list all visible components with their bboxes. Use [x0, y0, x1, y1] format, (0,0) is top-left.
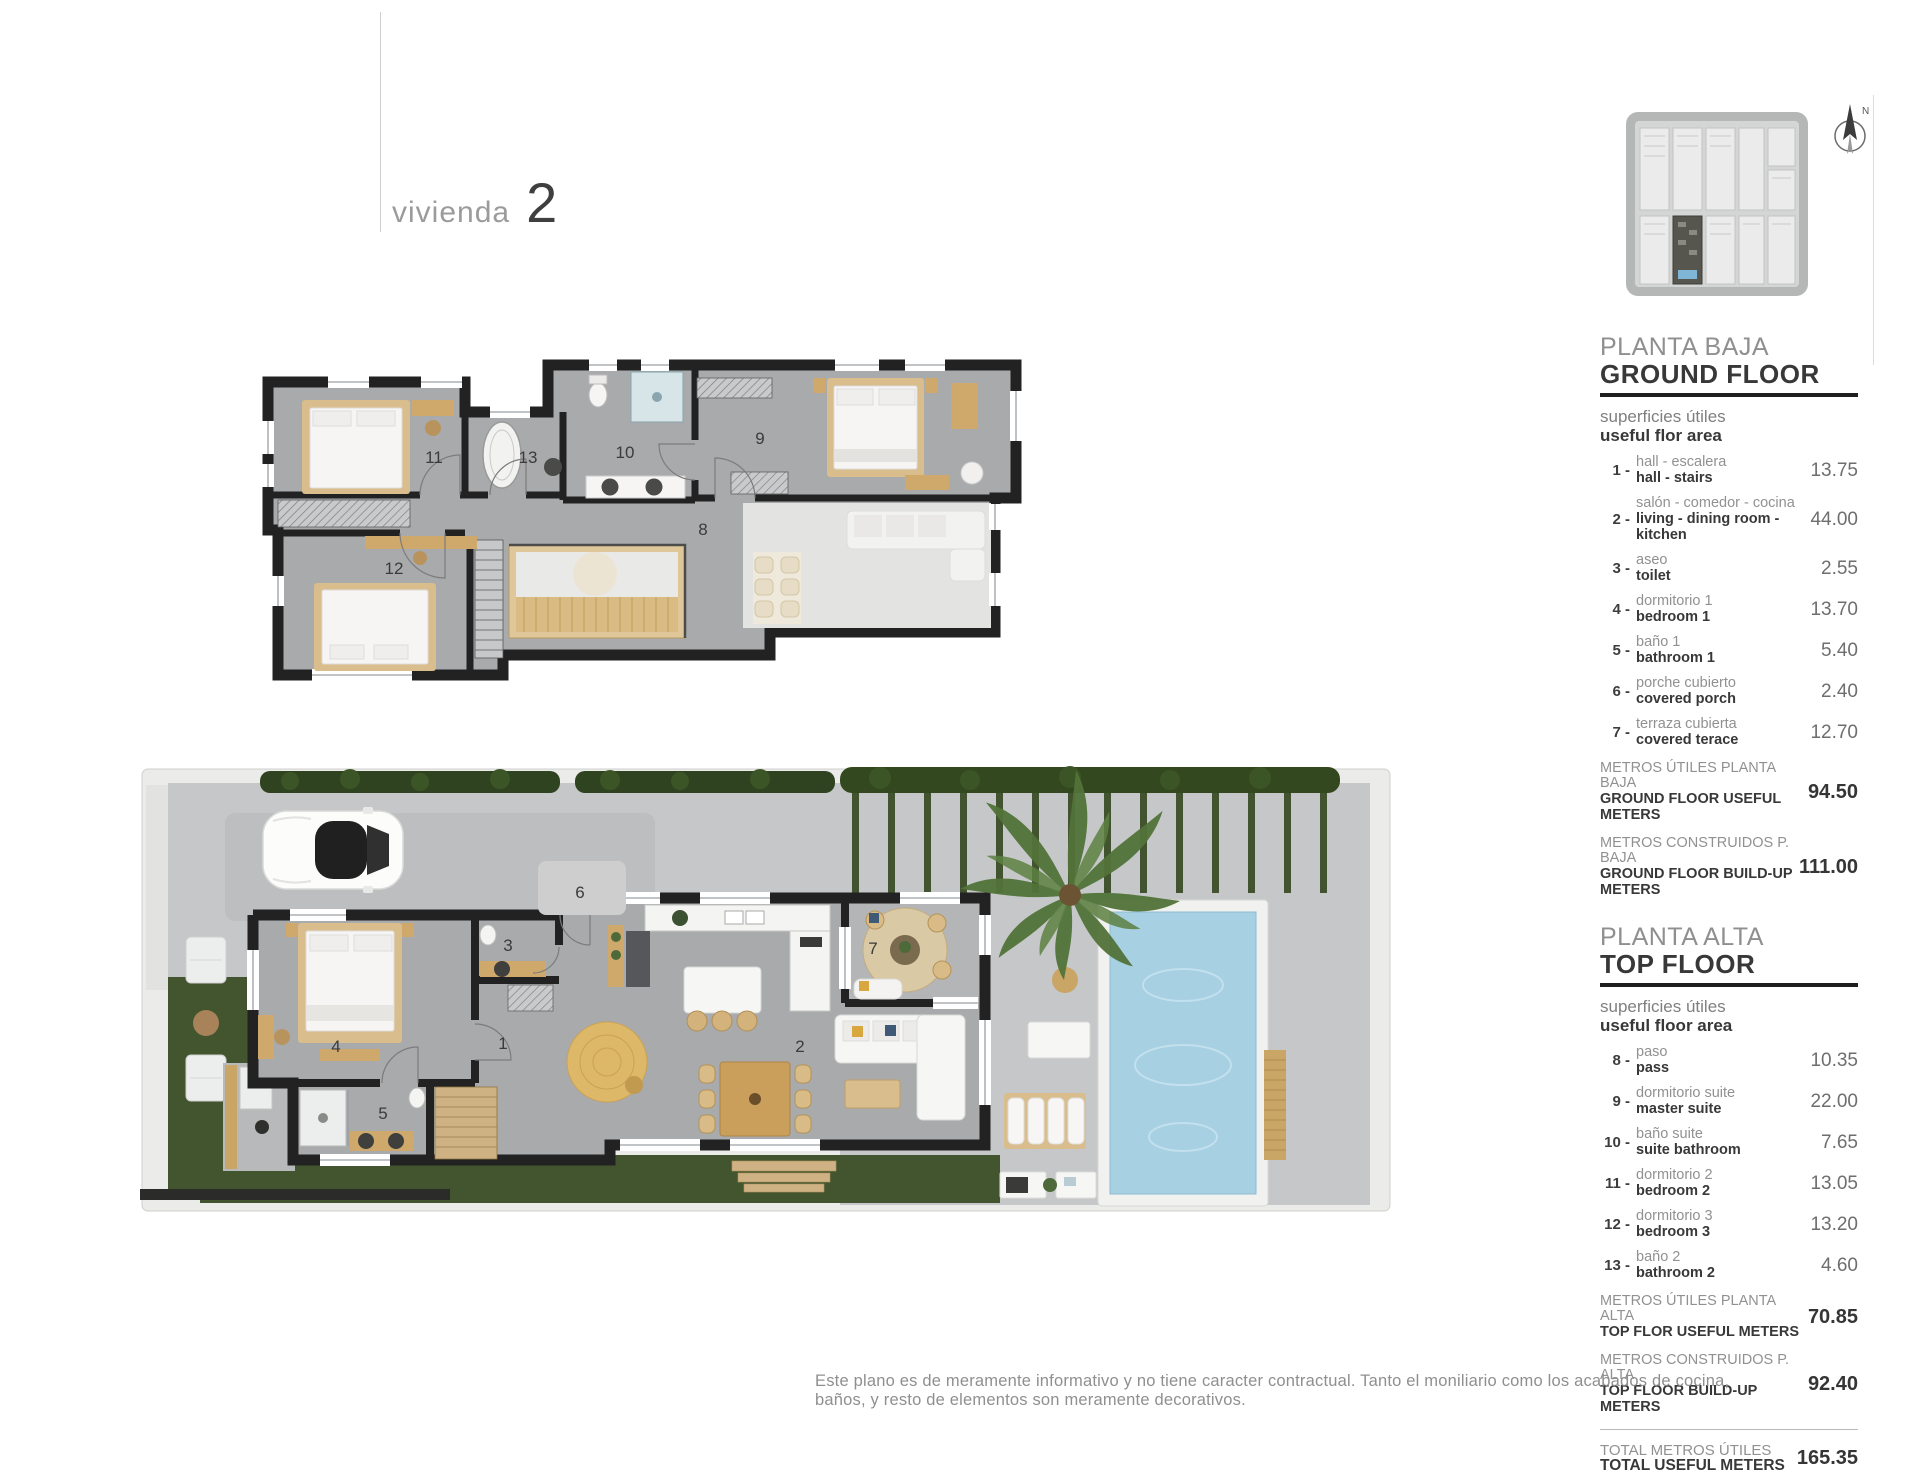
area-row: 6 -porche cubiertocovered porch2.40 [1600, 676, 1858, 707]
decorative-vertical-line [1873, 95, 1874, 365]
area-row: 8 -pasopass10.35 [1600, 1045, 1858, 1076]
area-row: 10 -baño suitesuite bathroom7.65 [1600, 1127, 1858, 1158]
area-row: 4 -dormitorio 1bedroom 113.70 [1600, 594, 1858, 625]
disclaimer-text: Este plano es de meramente informativo y… [815, 1372, 1775, 1410]
top-floor-plan: 11 13 10 9 8 12 [250, 345, 1050, 705]
site-plan-thumbnail [1620, 98, 1820, 308]
car [263, 807, 403, 893]
room-label-2: 2 [795, 1037, 804, 1056]
area-number: 1 - [1600, 462, 1636, 479]
title-divider-line [380, 12, 381, 232]
floorplan-sheet: vivienda 2 N [0, 0, 1920, 1484]
area-row: 12 -dormitorio 3bedroom 313.20 [1600, 1209, 1858, 1240]
section-ground-floor: PLANTA BAJA GROUND FLOOR superficies úti… [1600, 334, 1858, 898]
area-legend: PLANTA BAJA GROUND FLOOR superficies úti… [1600, 334, 1858, 1484]
room-label-8: 8 [698, 520, 707, 539]
area-row: 5 -baño 1bathroom 15.40 [1600, 635, 1858, 666]
page-title: vivienda 2 [392, 170, 557, 235]
area-row: 11 -dormitorio 2bedroom 213.05 [1600, 1168, 1858, 1199]
site-plan-pool [1678, 270, 1697, 279]
room-label-10: 10 [616, 443, 635, 462]
room-label-1: 1 [498, 1034, 507, 1053]
room-label-13: 13 [519, 448, 538, 467]
area-row: 9 -dormitorio suitemaster suite22.00 [1600, 1086, 1858, 1117]
garden-steps [732, 1161, 836, 1192]
room-label-3: 3 [503, 936, 512, 955]
area-row: 2 -salón - comedor - cocinaliving - dini… [1600, 496, 1858, 543]
total-row: METROS ÚTILES PLANTA ALTATOP FLOR USEFUL… [1600, 1294, 1858, 1340]
area-row: 7 -terraza cubiertacovered terace12.70 [1600, 717, 1858, 748]
staircase [475, 540, 503, 658]
kitchen-island [684, 967, 761, 1013]
total-row: METROS CONSTRUIDOS P. BAJAGROUND FLOOR B… [1600, 836, 1858, 898]
area-row: 13 -baño 2bathroom 24.60 [1600, 1250, 1858, 1281]
subtitle-en: useful flor area [1600, 426, 1858, 445]
room-label-6: 6 [575, 883, 584, 902]
room-label-4: 4 [331, 1037, 340, 1056]
section-grand-totals: TOTAL METROS ÚTILESTOTAL USEFUL METERS16… [1600, 1429, 1858, 1484]
dwelling-number: 2 [526, 170, 557, 235]
section-top-floor: PLANTA ALTA TOP FLOOR superficies útiles… [1600, 924, 1858, 1415]
site-plan-units [1640, 128, 1795, 284]
room-label-5: 5 [378, 1104, 387, 1123]
section-title-es: PLANTA BAJA [1600, 334, 1858, 360]
ground-floor-plan: 1 2 3 4 5 6 7 [140, 765, 1395, 1215]
room-label-7: 7 [868, 939, 877, 958]
dwelling-label: vivienda [392, 196, 510, 230]
boundary-fence [140, 1189, 450, 1200]
room-label-12: 12 [385, 559, 404, 578]
area-row: 3 -aseotoilet2.55 [1600, 553, 1858, 584]
subtitle-es: superficies útiles [1600, 407, 1858, 426]
room-label-11: 11 [425, 448, 443, 467]
pool [1098, 900, 1268, 1206]
total-row: METROS ÚTILES PLANTA BAJAGROUND FLOOR US… [1600, 761, 1858, 823]
room-label-9: 9 [755, 429, 764, 448]
area-value: 13.75 [1804, 460, 1858, 482]
section-rule [1600, 393, 1858, 397]
compass-north-label: N [1862, 106, 1869, 117]
area-row: 1 -hall - escalerahall - stairs13.75 [1600, 455, 1858, 486]
stairwell-void [509, 545, 685, 638]
pool-deck [1264, 1050, 1286, 1160]
section-title-en: GROUND FLOOR [1600, 360, 1858, 388]
grand-total-row: TOTAL METROS ÚTILESTOTAL USEFUL METERS16… [1600, 1443, 1858, 1474]
